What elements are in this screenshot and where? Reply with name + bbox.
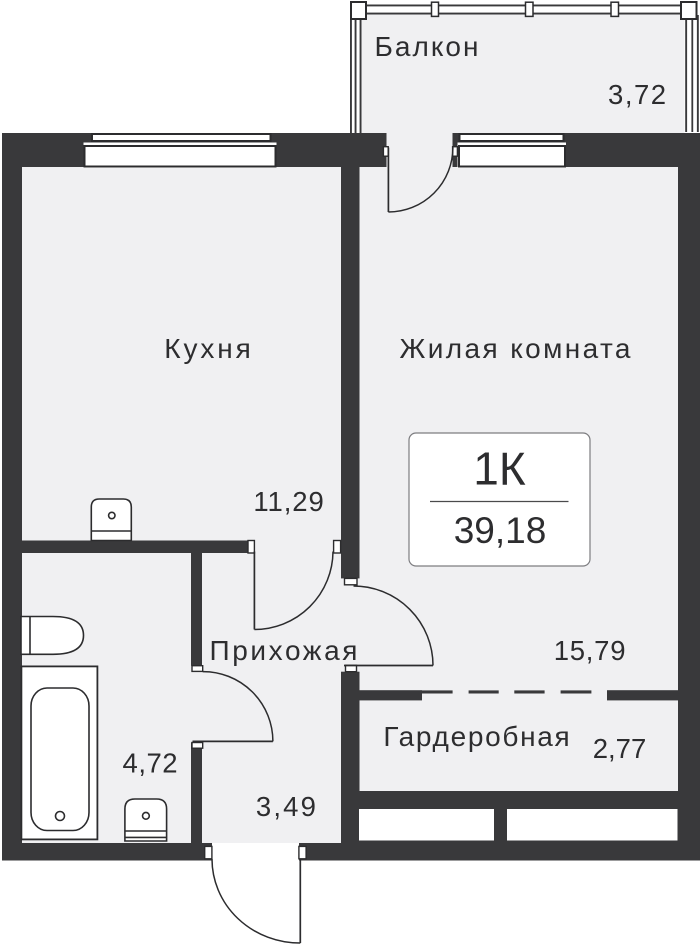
- svg-text:1К: 1К: [473, 443, 526, 495]
- svg-text:Прихожая: Прихожая: [210, 635, 361, 666]
- svg-text:11,29: 11,29: [253, 486, 324, 517]
- svg-text:15,79: 15,79: [554, 635, 627, 666]
- svg-text:39,18: 39,18: [454, 510, 547, 551]
- svg-text:Гардеробная: Гардеробная: [383, 721, 571, 752]
- svg-text:2,77: 2,77: [593, 733, 647, 764]
- svg-text:Кухня: Кухня: [164, 333, 253, 364]
- svg-text:3,72: 3,72: [608, 79, 668, 110]
- svg-text:4,72: 4,72: [123, 748, 179, 779]
- svg-text:Жилая комната: Жилая комната: [399, 333, 632, 364]
- svg-text:Балкон: Балкон: [375, 31, 481, 62]
- svg-text:3,49: 3,49: [256, 791, 318, 822]
